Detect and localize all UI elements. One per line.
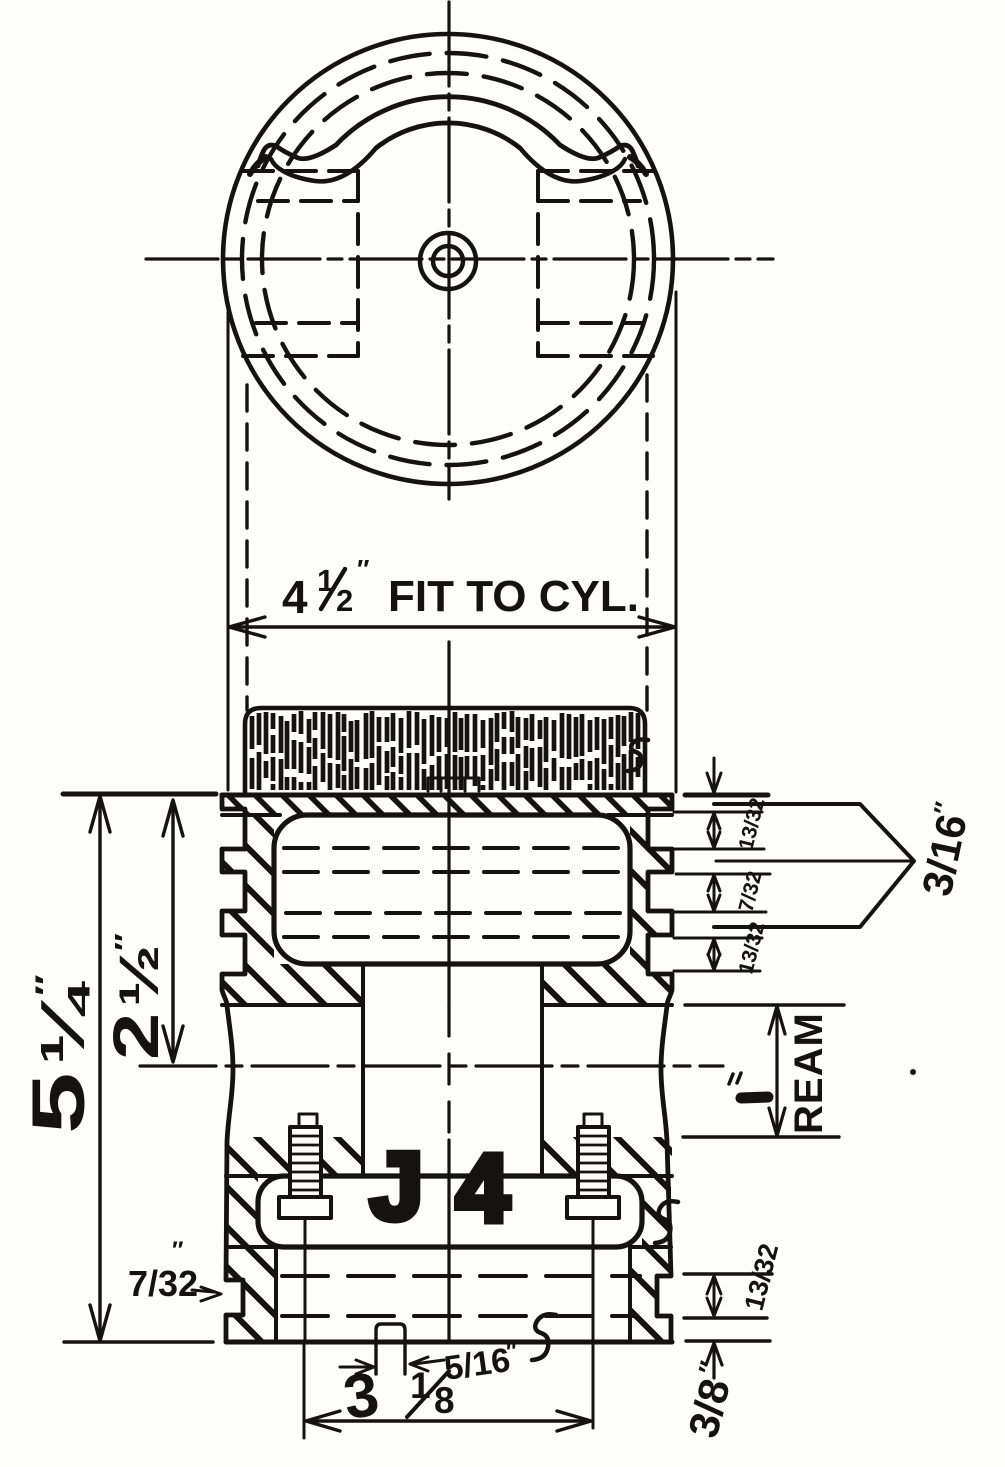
svg-text:7/32: 7/32	[735, 869, 767, 914]
svg-text:″: ″	[29, 974, 63, 996]
svg-text:J: J	[370, 1133, 423, 1240]
svg-text:13/32: 13/32	[739, 1241, 784, 1314]
svg-text:″: ″	[109, 933, 140, 951]
svg-text:″: ″	[172, 1237, 184, 1264]
svg-text:½: ½	[107, 945, 170, 1007]
svg-text:4: 4	[282, 571, 308, 623]
svg-text:1: 1	[410, 1365, 431, 1406]
svg-text:7/32: 7/32	[128, 1263, 198, 1304]
svg-text:3/16: 3/16	[913, 810, 976, 900]
svg-text:5: 5	[17, 1072, 99, 1134]
svg-text:″: ″	[357, 554, 369, 584]
svg-text:FIT TO CYL.: FIT TO CYL.	[388, 572, 639, 621]
svg-text:4: 4	[456, 1135, 509, 1242]
svg-text:3/8: 3/8	[679, 1374, 739, 1442]
svg-text:1: 1	[317, 563, 334, 598]
svg-text:2: 2	[336, 583, 353, 618]
svg-text:2: 2	[100, 1013, 171, 1060]
svg-text:REAM: REAM	[787, 1012, 831, 1134]
svg-text:8: 8	[434, 1380, 455, 1421]
